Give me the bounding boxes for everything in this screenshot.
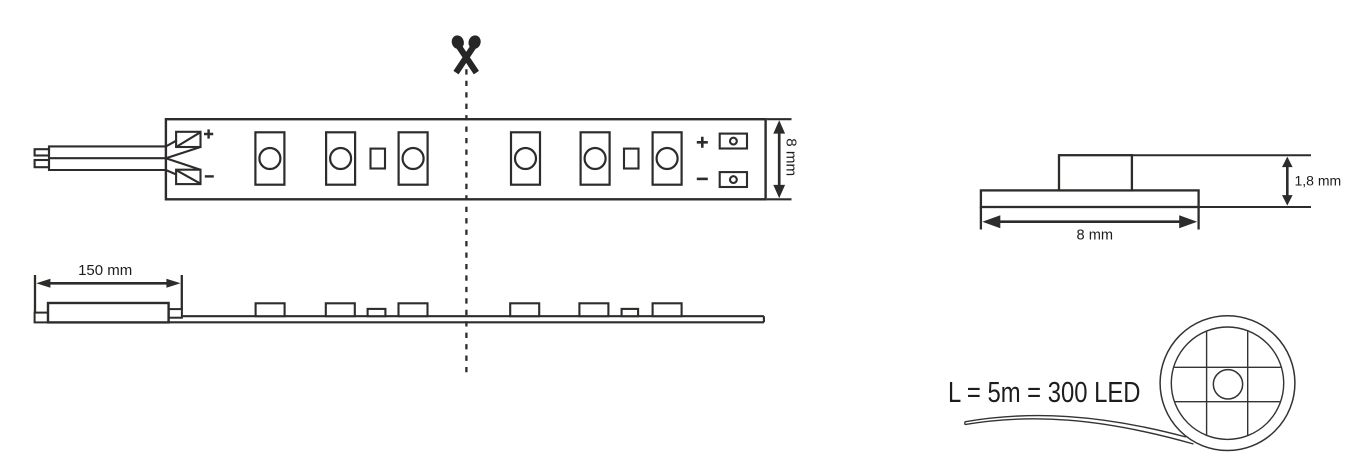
svg-text:1,8 mm: 1,8 mm <box>1295 173 1342 189</box>
svg-text:8 mm: 8 mm <box>783 138 799 176</box>
svg-text:L = 5m = 300 LED: L = 5m = 300 LED <box>948 377 1141 409</box>
svg-text:150 mm: 150 mm <box>78 262 132 279</box>
svg-text:8 mm: 8 mm <box>1077 228 1113 244</box>
